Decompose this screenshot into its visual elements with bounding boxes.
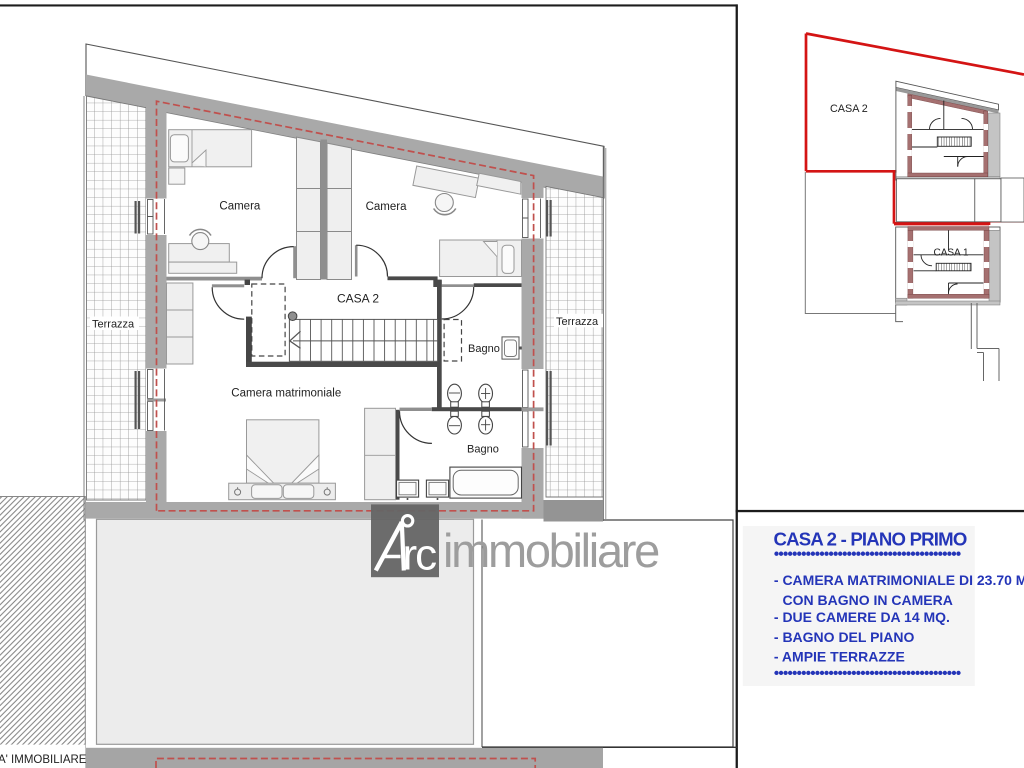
svg-text:Bagno: Bagno — [468, 343, 500, 355]
svg-text:CASA 1: CASA 1 — [934, 248, 969, 259]
svg-text:rc: rc — [403, 531, 437, 580]
svg-text:Bagno: Bagno — [467, 444, 499, 456]
svg-text:- CAMERA MATRIMONIALE DI 23.70: - CAMERA MATRIMONIALE DI 23.70 MQ. — [774, 572, 1024, 588]
svg-text:CON BAGNO IN CAMERA: CON BAGNO IN CAMERA — [783, 592, 953, 608]
svg-text:A' IMMOBILIARE: A' IMMOBILIARE — [0, 754, 87, 766]
svg-text:CASA 2: CASA 2 — [830, 103, 868, 115]
svg-text:- DUE CAMERE DA 14 MQ.: - DUE CAMERE DA 14 MQ. — [774, 609, 950, 625]
svg-text:Camera: Camera — [219, 201, 261, 213]
svg-text:CASA 2: CASA 2 — [337, 292, 379, 306]
svg-text:Terrazza: Terrazza — [92, 319, 135, 331]
svg-text:Camera: Camera — [366, 201, 408, 213]
svg-text:CASA 2 - PIANO PRIMO: CASA 2 - PIANO PRIMO — [774, 529, 967, 550]
svg-text:Camera matrimoniale: Camera matrimoniale — [231, 387, 341, 399]
svg-text:Terrazza: Terrazza — [556, 316, 599, 328]
svg-text:immobiliare: immobiliare — [443, 524, 659, 577]
svg-text:- AMPIE TERRAZZE: - AMPIE TERRAZZE — [774, 649, 905, 665]
svg-text:- BAGNO DEL PIANO: - BAGNO DEL PIANO — [774, 629, 915, 645]
